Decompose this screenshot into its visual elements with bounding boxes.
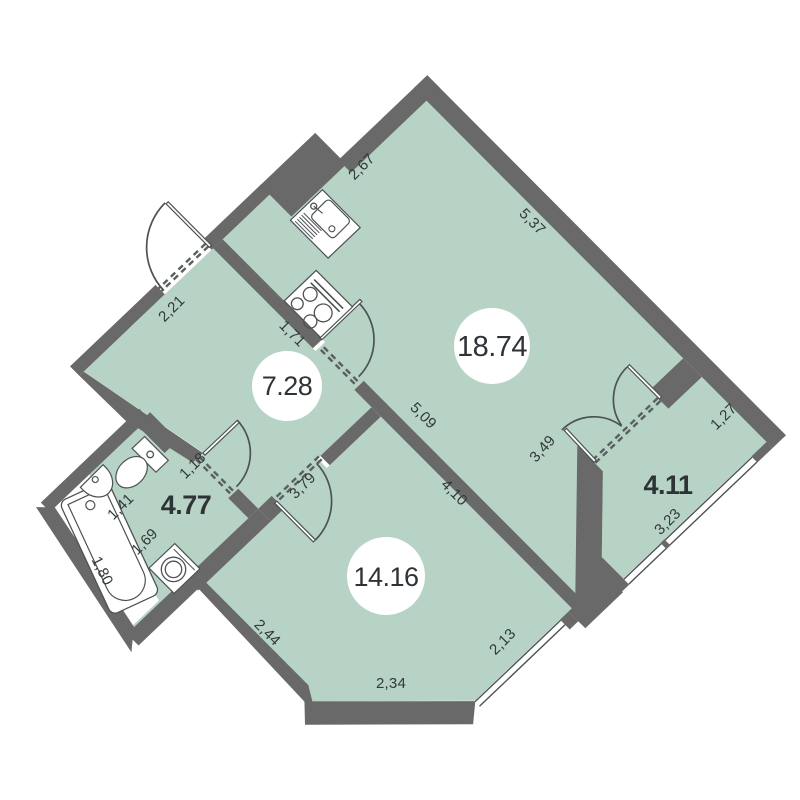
svg-text:14.16: 14.16 <box>353 562 418 592</box>
svg-text:7.28: 7.28 <box>262 371 313 401</box>
svg-text:4.77: 4.77 <box>161 490 212 520</box>
svg-text:18.74: 18.74 <box>457 331 527 363</box>
svg-text:4.11: 4.11 <box>643 470 693 500</box>
svg-text:2,34: 2,34 <box>376 675 406 692</box>
